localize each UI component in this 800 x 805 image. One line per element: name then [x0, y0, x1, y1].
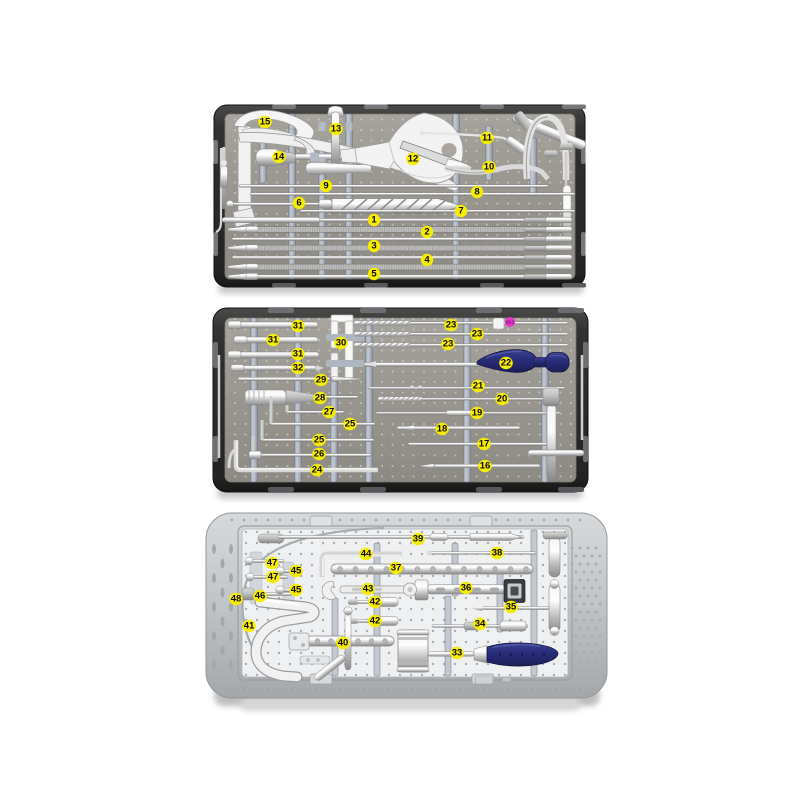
svg-text:12: 12: [408, 154, 419, 165]
svg-text:45: 45: [291, 585, 302, 596]
svg-text:42: 42: [370, 597, 381, 608]
svg-text:44: 44: [361, 549, 372, 560]
svg-text:19: 19: [472, 408, 483, 419]
svg-text:27: 27: [324, 407, 335, 418]
svg-text:33: 33: [452, 648, 463, 659]
svg-text:36: 36: [461, 583, 472, 594]
svg-text:32: 32: [293, 363, 304, 374]
svg-text:43: 43: [363, 584, 374, 595]
svg-text:24: 24: [312, 465, 323, 476]
svg-text:13: 13: [331, 124, 342, 135]
svg-text:18: 18: [437, 424, 448, 435]
svg-text:22: 22: [501, 358, 512, 369]
svg-text:47: 47: [267, 558, 278, 569]
svg-text:8: 8: [474, 187, 479, 198]
svg-text:16: 16: [480, 461, 491, 472]
svg-text:31: 31: [293, 349, 304, 360]
svg-text:47: 47: [268, 572, 279, 583]
svg-text:4: 4: [424, 255, 430, 266]
svg-text:26: 26: [314, 449, 325, 460]
svg-text:21: 21: [473, 381, 484, 392]
svg-text:40: 40: [338, 638, 349, 649]
svg-text:20: 20: [497, 394, 508, 405]
svg-text:31: 31: [293, 321, 304, 332]
svg-text:23: 23: [443, 339, 454, 350]
svg-text:25: 25: [345, 419, 356, 430]
svg-text:37: 37: [391, 563, 402, 574]
svg-text:2: 2: [424, 227, 429, 238]
svg-text:41: 41: [244, 621, 255, 632]
svg-text:30: 30: [336, 338, 347, 349]
svg-text:14: 14: [274, 152, 285, 163]
svg-text:34: 34: [475, 619, 486, 630]
svg-text:29: 29: [316, 375, 327, 386]
svg-text:10: 10: [484, 162, 495, 173]
svg-text:1: 1: [371, 215, 377, 226]
svg-text:35: 35: [506, 602, 517, 613]
svg-text:3: 3: [371, 241, 376, 252]
svg-text:23: 23: [472, 329, 483, 340]
svg-text:5: 5: [371, 269, 377, 280]
svg-text:9: 9: [323, 181, 328, 192]
svg-text:15: 15: [260, 117, 271, 128]
svg-text:17: 17: [479, 439, 490, 450]
svg-text:45: 45: [291, 566, 302, 577]
svg-text:38: 38: [492, 548, 503, 559]
svg-text:25: 25: [314, 435, 325, 446]
svg-text:23: 23: [446, 320, 457, 331]
svg-text:31: 31: [268, 335, 279, 346]
svg-text:39: 39: [413, 534, 424, 545]
svg-text:42: 42: [370, 616, 381, 627]
svg-text:28: 28: [315, 393, 326, 404]
svg-text:7: 7: [458, 206, 463, 217]
svg-text:48: 48: [231, 594, 242, 605]
svg-text:46: 46: [255, 591, 266, 602]
svg-text:6: 6: [296, 198, 301, 209]
svg-text:23.1: 23.1: [506, 320, 515, 325]
svg-text:11: 11: [482, 133, 493, 144]
